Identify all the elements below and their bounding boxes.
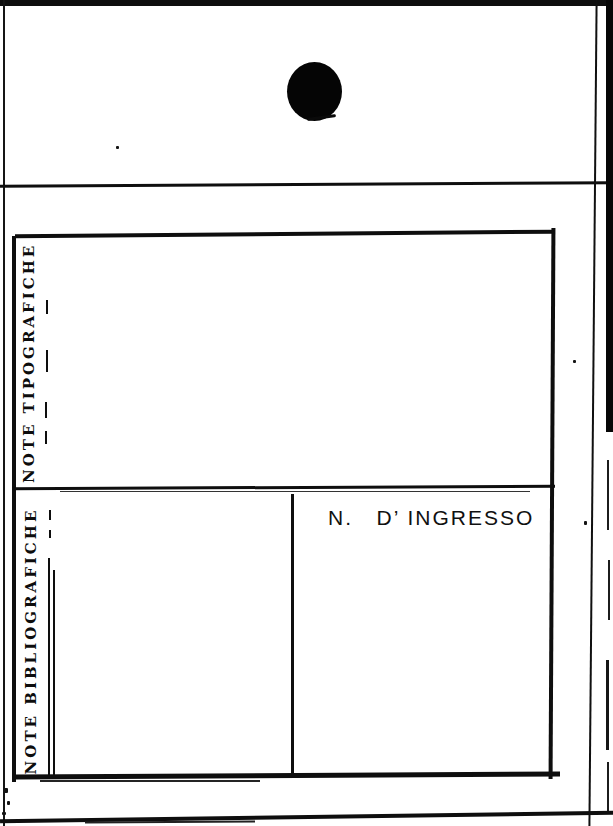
field-row-formato: Formato ..................- xyxy=(66,563,290,587)
scan-speck xyxy=(7,801,10,805)
ingresso-box-title: N. D’ INGRESSO xyxy=(328,506,534,530)
inner-rule-line xyxy=(48,558,50,776)
inner-rule-line xyxy=(53,570,55,776)
inner-rule-mark xyxy=(45,402,47,418)
punch-hole-icon xyxy=(287,62,342,121)
field-row-tavole: Tavole ..................- xyxy=(66,703,290,727)
form-box-border-left xyxy=(12,236,16,782)
page-left-edge-line xyxy=(3,0,5,826)
field-row-pagine: Pagine .....,.............. xyxy=(66,657,290,681)
page-right-edge-mark xyxy=(606,660,609,750)
field-row-legatura: Legatura.................- xyxy=(66,750,290,774)
form-box-border-right xyxy=(549,228,556,779)
inner-rule-mark xyxy=(49,530,51,538)
section-title-note-tipografiche: NOTE TIPOGRAFICHE xyxy=(17,247,41,483)
section-divider-line xyxy=(12,485,555,490)
inner-rule-mark xyxy=(45,431,47,444)
field-row-tipografia: Tipografia . . . . - xyxy=(72,400,544,424)
field-row-editore: Editore . . . . , . . . . . . . . . . . … xyxy=(72,307,544,331)
scan-speck xyxy=(573,360,576,363)
scan-speck xyxy=(584,521,587,525)
ingresso-divider-line xyxy=(291,494,294,777)
card-top-fold-line xyxy=(0,181,613,188)
inner-rule-mark xyxy=(46,350,48,372)
field-row-l-di-stampa: L. di stampa . . . . . xyxy=(72,355,544,379)
field-row-volume: Volume . . . . . ........... xyxy=(66,610,290,634)
page-right-rule-line xyxy=(588,0,597,826)
catalog-card-scan: NOTE TIPOGRAFICHE NOTE BIBLIOGRAFICHE L.… xyxy=(0,0,613,826)
scan-speck xyxy=(116,146,119,149)
page-top-edge-line xyxy=(0,0,613,6)
form-box-border-bottom-thin xyxy=(40,780,260,782)
inner-rule-mark xyxy=(46,300,48,314)
inner-rule-mark xyxy=(49,510,51,520)
page-right-edge-mark xyxy=(607,460,609,530)
scan-speck xyxy=(2,812,6,815)
section-divider-line-thin xyxy=(60,491,530,492)
page-right-edge-stripe xyxy=(606,0,613,432)
scan-speck xyxy=(4,788,8,793)
page-right-edge-mark xyxy=(608,560,610,620)
field-row-edizione: Edizione.................... xyxy=(66,517,290,541)
form-box-border-top xyxy=(15,230,555,239)
page-bottom-edge-mark xyxy=(85,820,255,823)
page-right-edge-mark xyxy=(607,762,609,812)
field-row-data: Data . . xyxy=(72,446,544,470)
field-row-l-di-pubbl: L. di pubbl. . . . . . . . . . . . . . . xyxy=(72,259,544,283)
section-title-note-bibliografiche: NOTE BIBLIOGRAFICHE xyxy=(19,505,43,777)
